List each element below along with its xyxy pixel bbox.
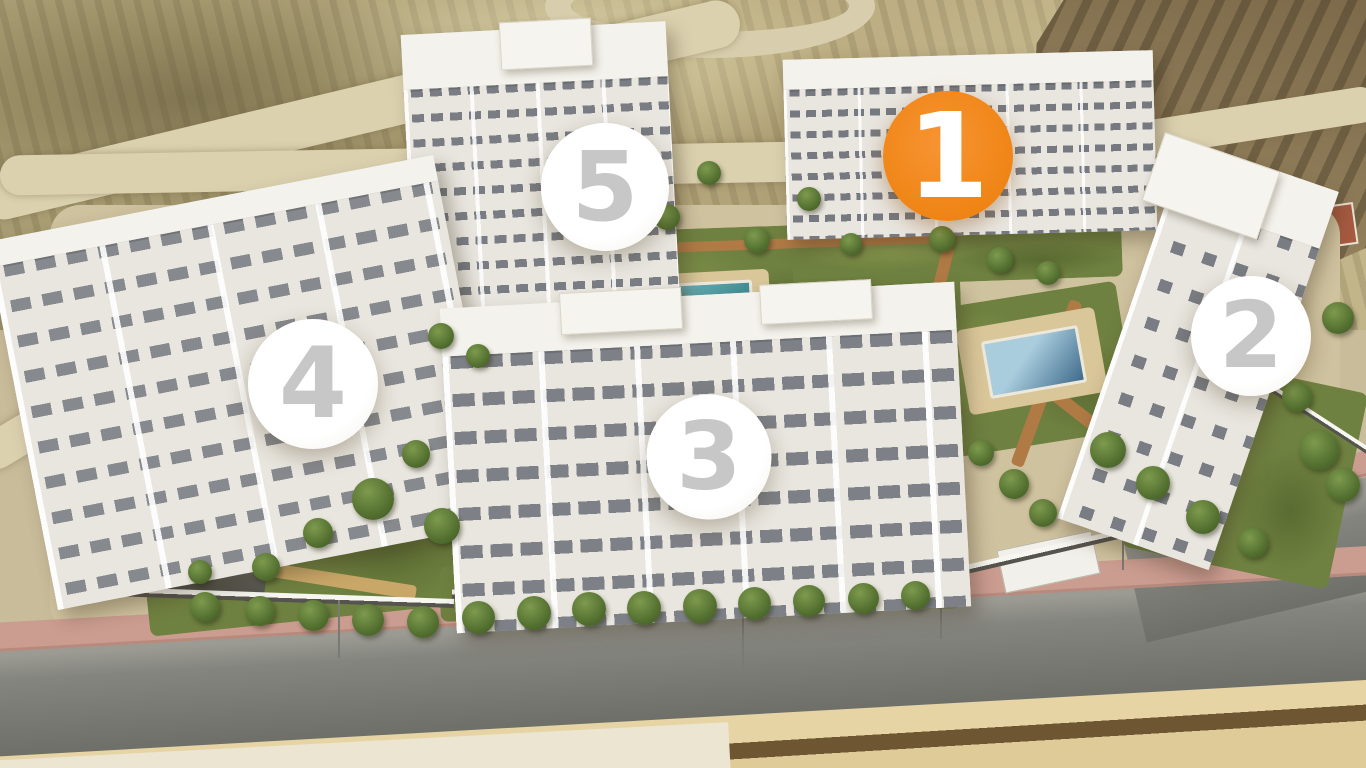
- palm-tree: [1036, 261, 1060, 285]
- palm-tree: [797, 187, 821, 211]
- palm-tree: [840, 233, 862, 255]
- palm-tree: [987, 247, 1013, 273]
- tree: [424, 508, 460, 544]
- rooftop-structure: [559, 287, 683, 335]
- tree: [1186, 500, 1220, 534]
- tree: [683, 589, 717, 623]
- marker-number: 3: [676, 410, 741, 504]
- marker-number: 5: [572, 139, 639, 235]
- tree: [1322, 302, 1354, 334]
- tree: [901, 581, 930, 610]
- tree: [352, 604, 384, 636]
- tree: [999, 469, 1029, 499]
- tree: [462, 601, 495, 634]
- tree: [848, 583, 879, 614]
- tree: [793, 585, 825, 617]
- marker-block-1[interactable]: 1: [883, 91, 1013, 221]
- marker-block-2[interactable]: 2: [1191, 276, 1311, 396]
- tree: [517, 596, 551, 630]
- street-light: [742, 612, 744, 667]
- tree: [738, 587, 771, 620]
- tree: [572, 592, 606, 626]
- tree: [466, 344, 490, 368]
- marker-number: 1: [907, 97, 989, 215]
- tree: [428, 323, 454, 349]
- palm-tree: [697, 161, 721, 185]
- rooftop-structure: [759, 279, 873, 325]
- tree: [968, 440, 994, 466]
- marker-block-4[interactable]: 4: [248, 319, 378, 449]
- tree: [402, 440, 430, 468]
- tree: [1326, 468, 1360, 502]
- street-light: [338, 600, 340, 658]
- tree: [1299, 430, 1339, 470]
- site-plan-render: 1 2 3 4 5: [0, 0, 1366, 768]
- palm-tree: [929, 226, 955, 252]
- marker-number: 4: [279, 335, 347, 433]
- tree: [298, 600, 329, 631]
- rooftop-structure: [499, 18, 593, 71]
- tree: [188, 560, 212, 584]
- palm-tree: [744, 227, 770, 253]
- tree: [1238, 528, 1268, 558]
- tree: [190, 592, 220, 622]
- tree: [407, 606, 439, 638]
- tree: [1282, 382, 1312, 412]
- tree: [245, 596, 275, 626]
- marker-block-5[interactable]: 5: [541, 123, 669, 251]
- tree: [303, 518, 333, 548]
- tree: [1136, 466, 1170, 500]
- marker-number: 2: [1219, 290, 1283, 382]
- marker-block-3[interactable]: 3: [647, 395, 772, 520]
- tree: [627, 591, 661, 625]
- tree: [1090, 432, 1126, 468]
- tree: [352, 478, 394, 520]
- tree: [252, 553, 280, 581]
- tree: [1029, 499, 1057, 527]
